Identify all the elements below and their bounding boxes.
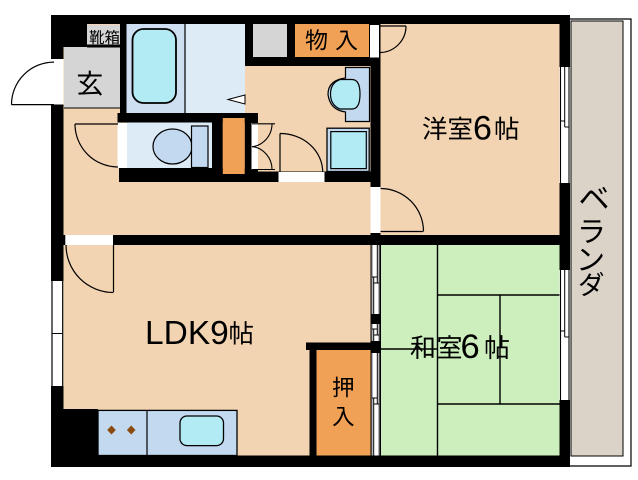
svg-text:6: 6 (461, 328, 480, 366)
svg-text:LDK9: LDK9 (145, 315, 229, 352)
svg-text:6: 6 (473, 110, 492, 148)
